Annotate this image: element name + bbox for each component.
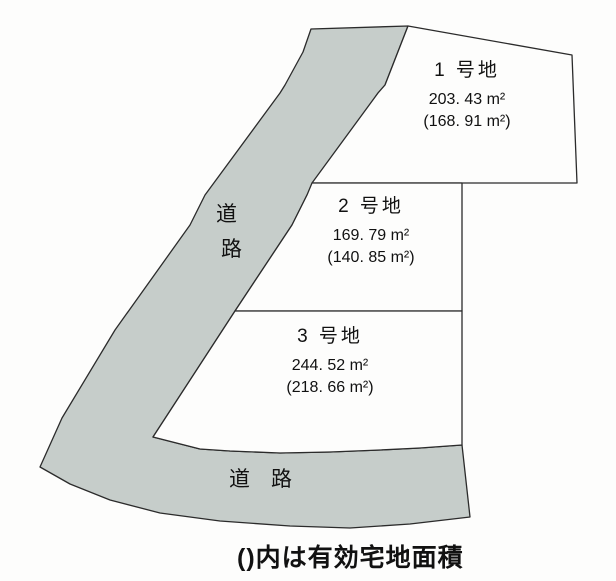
left-road-label-char-2: 路 (221, 239, 242, 260)
plot-2-area: 169. 79 m² (266, 228, 476, 244)
plot-2-label: 2 号地 169. 79 m² (140. 85 m²) (266, 197, 476, 266)
left-road-label-char-1: 道 (216, 204, 237, 225)
plot-1-effective-area: (168. 91 m²) (357, 114, 577, 130)
plot-1-area: 203. 43 m² (357, 92, 577, 108)
caption: ()内は有効宅地面積 (237, 538, 464, 574)
land-plot-diagram: 1 号地 203. 43 m² (168. 91 m²) 2 号地 169. 7… (0, 0, 616, 581)
plot-1-name: 1 号地 (357, 61, 577, 80)
plot-3-area: 244. 52 m² (225, 358, 435, 374)
plot-3-name: 3 号地 (225, 327, 435, 346)
plot-3-label: 3 号地 244. 52 m² (218. 66 m²) (225, 327, 435, 396)
bottom-road-label: 道 路 (229, 469, 292, 490)
plot-2-effective-area: (140. 85 m²) (266, 250, 476, 266)
plot-2-name: 2 号地 (266, 197, 476, 216)
plot-1-label: 1 号地 203. 43 m² (168. 91 m²) (357, 61, 577, 130)
plot-3-effective-area: (218. 66 m²) (225, 380, 435, 396)
